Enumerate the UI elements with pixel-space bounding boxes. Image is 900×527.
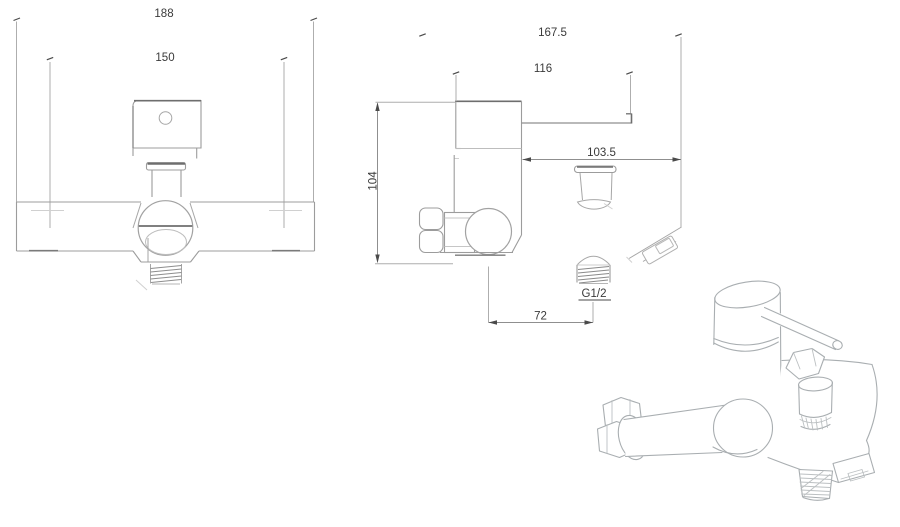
side-body xyxy=(420,101,632,255)
side-handshower xyxy=(575,166,617,209)
front-view: 188 150 xyxy=(14,8,318,290)
hole-spacing-label: 150 xyxy=(155,52,174,64)
front-valve-body xyxy=(133,201,199,262)
side-hose-connector xyxy=(577,256,610,283)
total-depth-label: 167.5 xyxy=(538,27,567,39)
outlet-span-label: 72 xyxy=(534,311,547,323)
dim-handle-reach: 116 xyxy=(453,63,633,113)
iso-diverter-knob xyxy=(798,376,833,430)
head-offset-label: 103.5 xyxy=(587,147,616,159)
side-view: 167.5 116 103.5 104 xyxy=(368,27,682,325)
iso-top-cylinder xyxy=(713,277,782,401)
dim-body-height: 104 xyxy=(368,102,456,263)
front-threaded-outlet xyxy=(136,264,182,290)
front-spout-block xyxy=(133,101,201,159)
side-lever xyxy=(522,114,632,124)
side-valve-circle xyxy=(466,209,512,255)
dim-overall-width: 188 xyxy=(14,8,318,202)
drawing-svg: 188 150 xyxy=(0,0,900,527)
dim-head-offset: 103.5 xyxy=(523,147,682,162)
side-shower-bracket xyxy=(627,227,682,265)
dim-total-depth: 167.5 xyxy=(419,27,681,227)
front-cartridge xyxy=(147,163,186,198)
dim-thread-size: G1/2 xyxy=(579,288,612,300)
isometric-view xyxy=(598,277,885,500)
overall-width-label: 188 xyxy=(154,8,173,20)
handle-reach-label: 116 xyxy=(534,63,552,75)
screw-hole xyxy=(159,112,172,125)
iso-threaded-outlet xyxy=(799,470,833,501)
technical-drawing-canvas: 188 150 xyxy=(0,0,900,527)
thread-size-label: G1/2 xyxy=(582,288,607,300)
